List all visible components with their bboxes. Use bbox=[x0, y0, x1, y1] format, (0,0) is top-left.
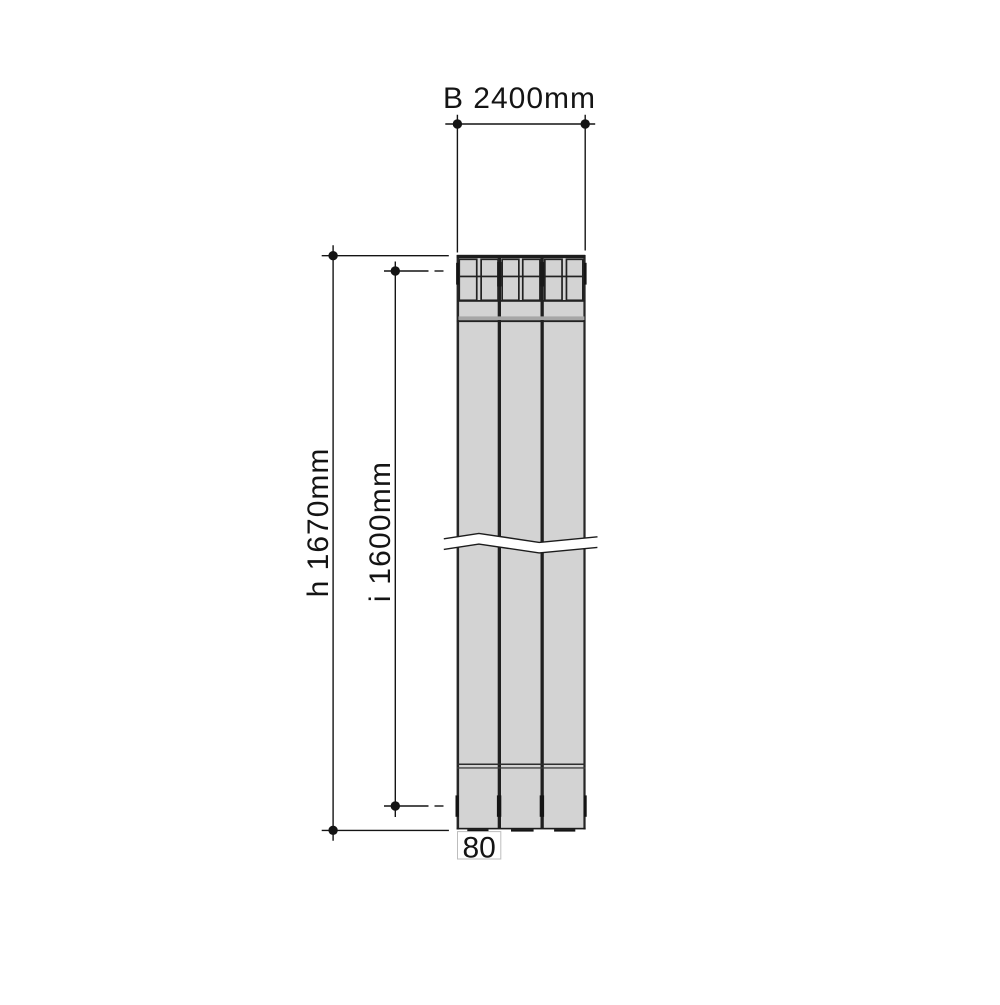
svg-text:i 1600mm: i 1600mm bbox=[364, 461, 397, 602]
svg-text:h 1670mm: h 1670mm bbox=[302, 448, 335, 598]
svg-text:B 2400mm: B 2400mm bbox=[443, 82, 596, 115]
svg-text:80: 80 bbox=[463, 831, 496, 864]
